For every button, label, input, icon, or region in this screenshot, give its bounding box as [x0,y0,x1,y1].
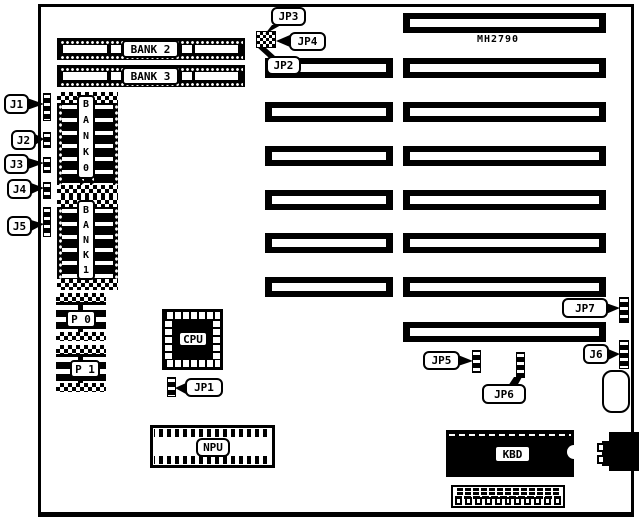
motherboard-diagram: MH2790 BANK 2 BANK 3 B A N K 0 B A [0,0,639,520]
isa-slot-long [403,190,606,210]
bank3-label: BANK 3 [122,67,179,85]
simm-socket-bank2: BANK 2 [57,38,245,60]
j1-pins [43,93,51,121]
dram-bank1-block: B A N K 1 [57,196,118,290]
din-pin [597,455,605,464]
isa-slot-long [403,13,606,33]
isa-slot-long [403,277,606,297]
pin-row [165,312,220,319]
din-pin [597,443,605,452]
simm-chip [111,72,121,80]
board-model-label: MH2790 [468,34,528,47]
power-pin [524,497,531,505]
pin-row [455,488,561,495]
simm-chip [63,72,107,80]
isa-slot-short [265,233,393,253]
jp3-callout: JP3 [271,7,306,26]
power-pin [465,497,472,505]
npu-socket: NPU [150,425,275,468]
jp6-callout: JP6 [482,384,526,404]
power-pin [475,497,482,505]
cpu-socket: CPU [162,309,223,370]
dram-bank0-block: B A N K 0 [57,92,118,196]
j4-pins [43,182,51,199]
simm-chip [182,45,192,53]
pin-row [56,332,106,341]
j3-callout: J3 [4,154,29,174]
isa-slot-short [265,277,393,297]
j6-callout: J6 [583,344,609,364]
isa-slot-short [265,190,393,210]
bank2-label: BANK 2 [122,40,179,58]
power-pin [544,497,551,505]
isa-slot-long [403,58,606,78]
p1-label: P 1 [70,360,100,378]
simm-socket-bank3: BANK 3 [57,65,245,87]
simm-chip [111,45,121,53]
power-pin [554,497,561,505]
jp6-pins [516,352,525,378]
power-pin [505,497,512,505]
pin-row [455,497,561,505]
simm-chip [195,45,238,53]
battery [602,370,630,413]
j3-pins [43,157,51,173]
pin-column [57,103,62,185]
isa-slot-long [403,102,606,122]
cpu-label: CPU [178,331,208,347]
pin-row [56,383,106,392]
pin-row [56,345,106,354]
jp5-callout: JP5 [423,351,460,370]
pin-column [213,319,220,360]
jp7-pins [619,297,629,323]
power-pin [495,497,502,505]
power-connector [451,485,565,508]
jp5-pins [472,350,481,373]
j1-callout: J1 [4,94,29,114]
keyboard-din-connector [609,432,639,471]
isa-slot-short [265,102,393,122]
j5-callout: J5 [7,216,32,236]
simm-chip [195,72,238,80]
pin-row [57,185,118,196]
isa-slot-long [403,146,606,166]
j4-callout: J4 [7,179,32,199]
p0-block: P 0 [56,293,106,341]
keyboard-controller-chip: KBD [446,430,574,477]
kbd-label: KBD [494,445,531,463]
power-pin [485,497,492,505]
j2-callout: J2 [11,130,36,150]
j5-pins [43,207,51,237]
npu-label: NPU [196,438,230,457]
isa-slot-long [403,322,606,342]
power-pin [514,497,521,505]
p1-block: P 1 [56,345,106,392]
jp3-jp4-pin-block [256,31,276,48]
chip-notch-line [449,434,571,436]
jp7-callout: JP7 [562,298,608,318]
simm-chip [182,72,192,80]
pin-row [56,293,106,302]
p0-label: P 0 [66,310,96,328]
pin-column [165,319,172,360]
jp1-callout: JP1 [185,378,223,397]
isa-slot-long [403,233,606,253]
j2-pins [43,132,51,148]
pin-column [113,103,118,185]
pin-column [113,207,118,279]
power-pin [534,497,541,505]
chip-notch [567,445,581,459]
pin-row [165,360,220,367]
pin-row [154,429,271,437]
pin-row [154,456,271,464]
jp2-callout: JP2 [266,56,301,75]
jp1-pins [167,377,176,397]
isa-slot-short [265,146,393,166]
bank1-label: B A N K 1 [77,200,95,280]
j6-pins [619,340,629,369]
jp4-callout: JP4 [289,32,326,51]
power-pin [455,497,462,505]
pin-row [57,279,118,290]
bank0-label: B A N K 0 [77,95,95,179]
pin-column [57,207,62,279]
simm-chip [63,45,107,53]
